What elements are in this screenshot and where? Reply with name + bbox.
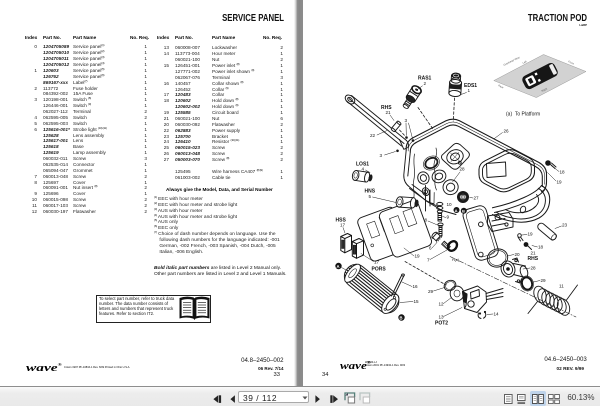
svg-text:23: 23 [562,223,568,228]
svg-text:3: 3 [380,153,383,158]
svg-text:H(a): H(a) [452,258,459,262]
svg-text:7: 7 [427,258,430,263]
svg-text:A: A [337,264,340,269]
svg-text:29: 29 [428,289,434,294]
svg-text:17: 17 [374,260,380,265]
svg-text:26: 26 [504,129,510,134]
svg-text:28: 28 [531,266,537,271]
svg-text:3: 3 [405,118,408,123]
svg-text:21: 21 [386,110,392,115]
svg-text:12: 12 [439,302,445,307]
svg-text:16: 16 [413,284,419,289]
svg-text:13: 13 [439,315,445,320]
svg-text:14: 14 [494,312,500,317]
svg-text:PORS: PORS [372,267,387,273]
svg-text:11: 11 [559,284,564,289]
svg-text:6: 6 [429,246,432,251]
svg-text:20: 20 [515,252,521,257]
svg-text:19: 19 [415,254,421,259]
svg-text:B: B [400,316,403,321]
svg-text:17: 17 [340,223,346,228]
svg-text:22: 22 [370,133,376,138]
svg-text:RHS: RHS [528,256,539,262]
svg-text:18: 18 [538,245,544,250]
svg-text:B: B [462,209,465,214]
svg-text:21: 21 [531,251,537,256]
svg-text:POT2: POT2 [435,321,448,327]
svg-text:19: 19 [528,232,534,237]
svg-text:2: 2 [424,81,427,86]
svg-text:10: 10 [447,202,453,207]
svg-text:5: 5 [369,194,372,199]
svg-text:18: 18 [560,170,566,175]
svg-text:15: 15 [414,299,420,304]
svg-text:EDS1: EDS1 [464,83,477,89]
svg-text:29: 29 [541,278,547,283]
svg-text:27: 27 [474,196,480,201]
svg-text:1: 1 [468,88,471,93]
svg-text:28: 28 [460,167,466,172]
svg-text:4: 4 [362,167,365,172]
svg-text:Overhead View: Overhead View [503,55,521,67]
svg-text:A: A [455,208,458,213]
svg-text:9: 9 [447,215,450,220]
svg-text:19: 19 [557,180,563,185]
svg-text:(a) To Platform: (a) To Platform [506,112,540,118]
